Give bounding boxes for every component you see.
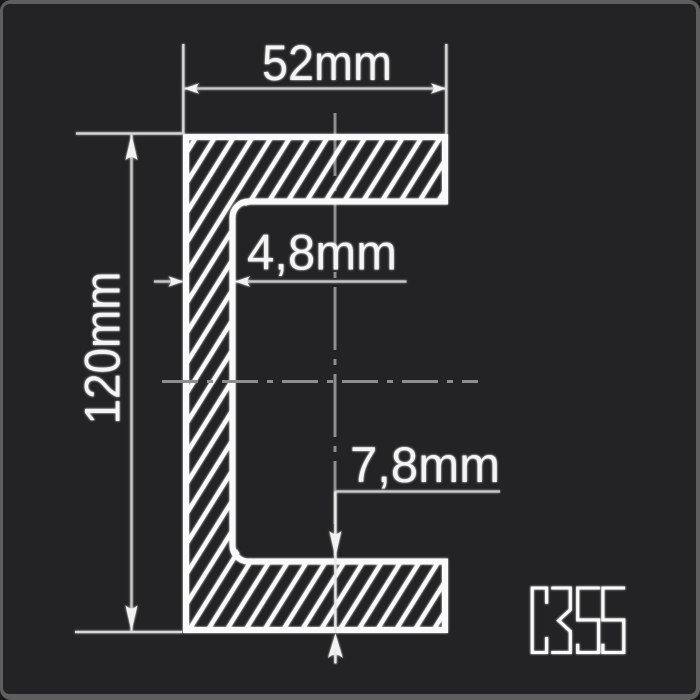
svg-text:52mm: 52mm <box>262 34 392 91</box>
svg-text:7,8mm: 7,8mm <box>350 436 500 493</box>
svg-text:120mm: 120mm <box>74 272 131 425</box>
svg-text:4,8mm: 4,8mm <box>247 224 397 281</box>
